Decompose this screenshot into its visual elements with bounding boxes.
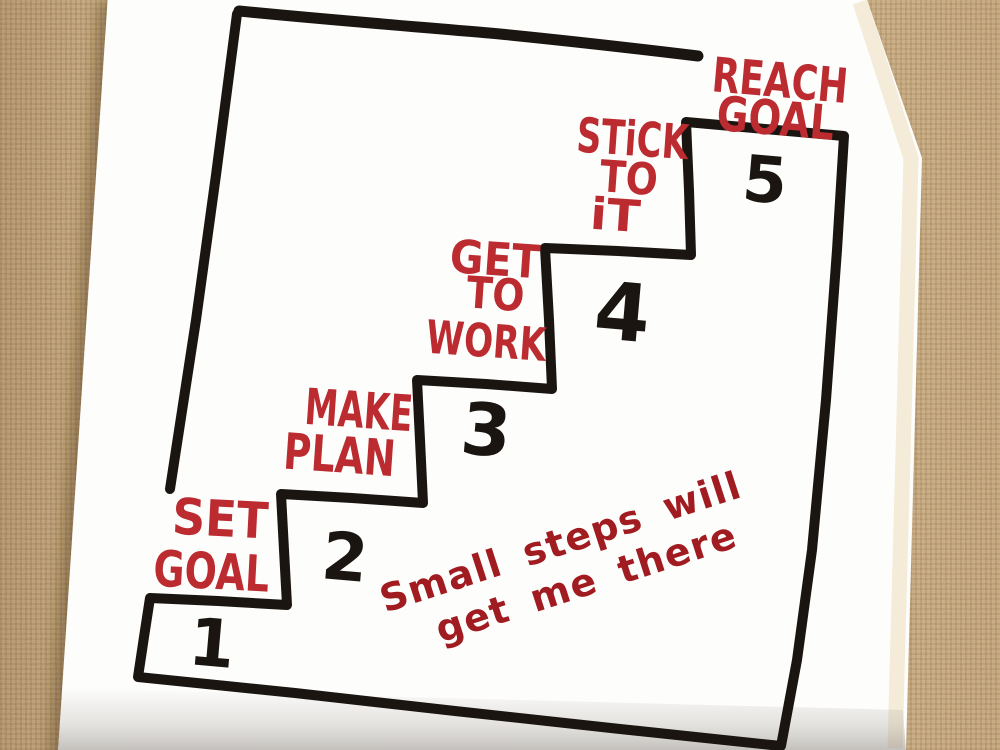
step-3-label-line-3: WORK [424, 310, 549, 372]
napkin-photo: SET GOAL MAKE PLAN GET TO WORK STiCK TO … [0, 0, 1000, 750]
step-4-label-line-3: iT [588, 189, 641, 243]
step-1-number: 1 [186, 603, 238, 684]
napkin-sketch-svg: SET GOAL MAKE PLAN GET TO WORK STiCK TO … [0, 0, 1000, 750]
step-4-number: 4 [591, 264, 655, 361]
step-5-label: REACH GOAL [706, 47, 850, 152]
step-3-number: 3 [458, 386, 515, 474]
step-2-number: 2 [319, 517, 371, 598]
step-2-label-line-2: PLAN [282, 422, 398, 488]
step-5-label-line-2: GOAL [714, 86, 836, 152]
step-5-number: 5 [739, 142, 790, 220]
step-1-label-line-2: GOAL [152, 540, 271, 604]
